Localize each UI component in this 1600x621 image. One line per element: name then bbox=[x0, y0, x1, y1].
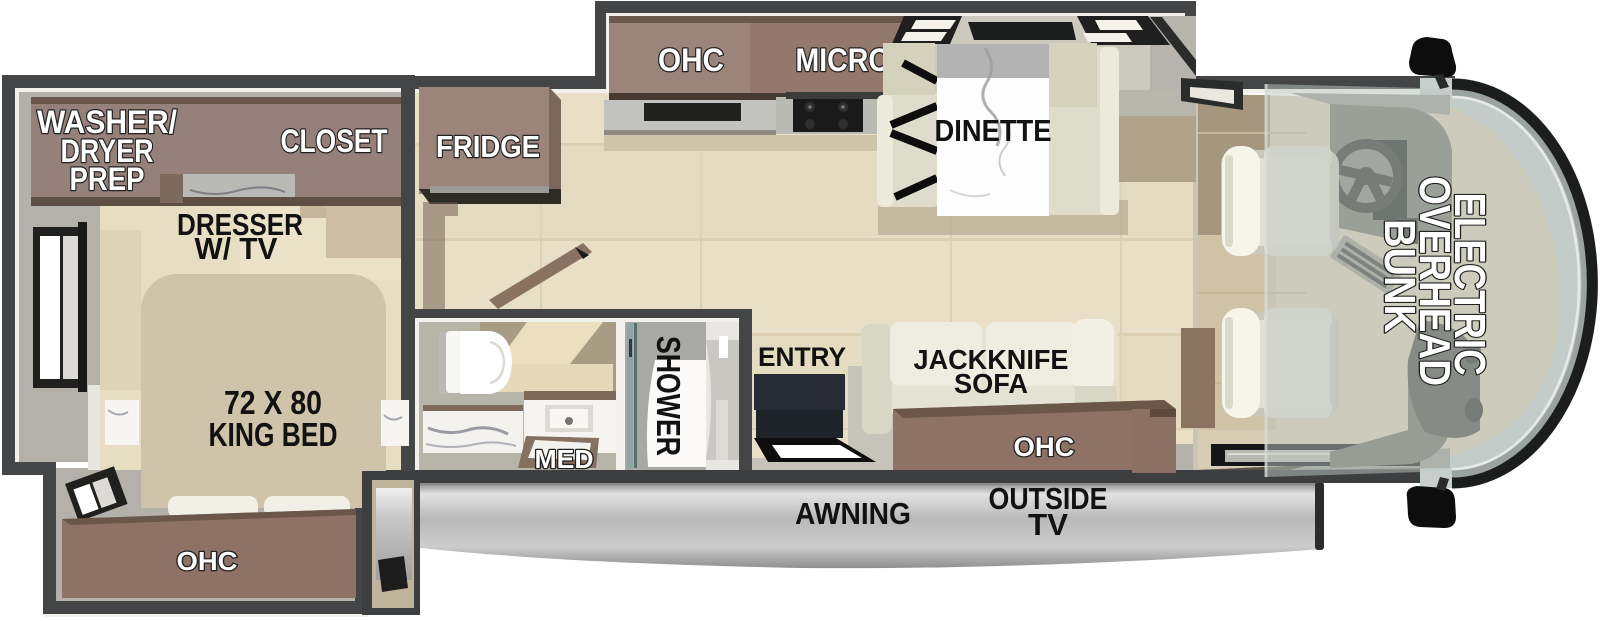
svg-text:SOFA: SOFA bbox=[954, 368, 1028, 399]
svg-text:CLOSET: CLOSET bbox=[281, 123, 388, 159]
svg-text:OHC: OHC bbox=[1014, 432, 1075, 462]
svg-text:AWNING: AWNING bbox=[795, 496, 911, 531]
svg-text:W/ TV: W/ TV bbox=[195, 231, 278, 266]
svg-text:KING BED: KING BED bbox=[209, 416, 338, 453]
svg-text:BUNK: BUNK bbox=[1375, 219, 1424, 333]
svg-text:PREP: PREP bbox=[70, 161, 145, 197]
svg-text:SHOWER: SHOWER bbox=[650, 336, 687, 456]
svg-text:FRIDGE: FRIDGE bbox=[436, 129, 540, 164]
svg-text:DINETTE: DINETTE bbox=[935, 113, 1052, 148]
svg-text:OHC: OHC bbox=[177, 546, 238, 576]
svg-text:ENTRY: ENTRY bbox=[758, 342, 846, 372]
svg-text:TV: TV bbox=[1028, 507, 1068, 542]
svg-text:MED: MED bbox=[535, 444, 594, 474]
svg-text:MICRO: MICRO bbox=[796, 42, 891, 78]
svg-text:OHC: OHC bbox=[658, 42, 724, 78]
